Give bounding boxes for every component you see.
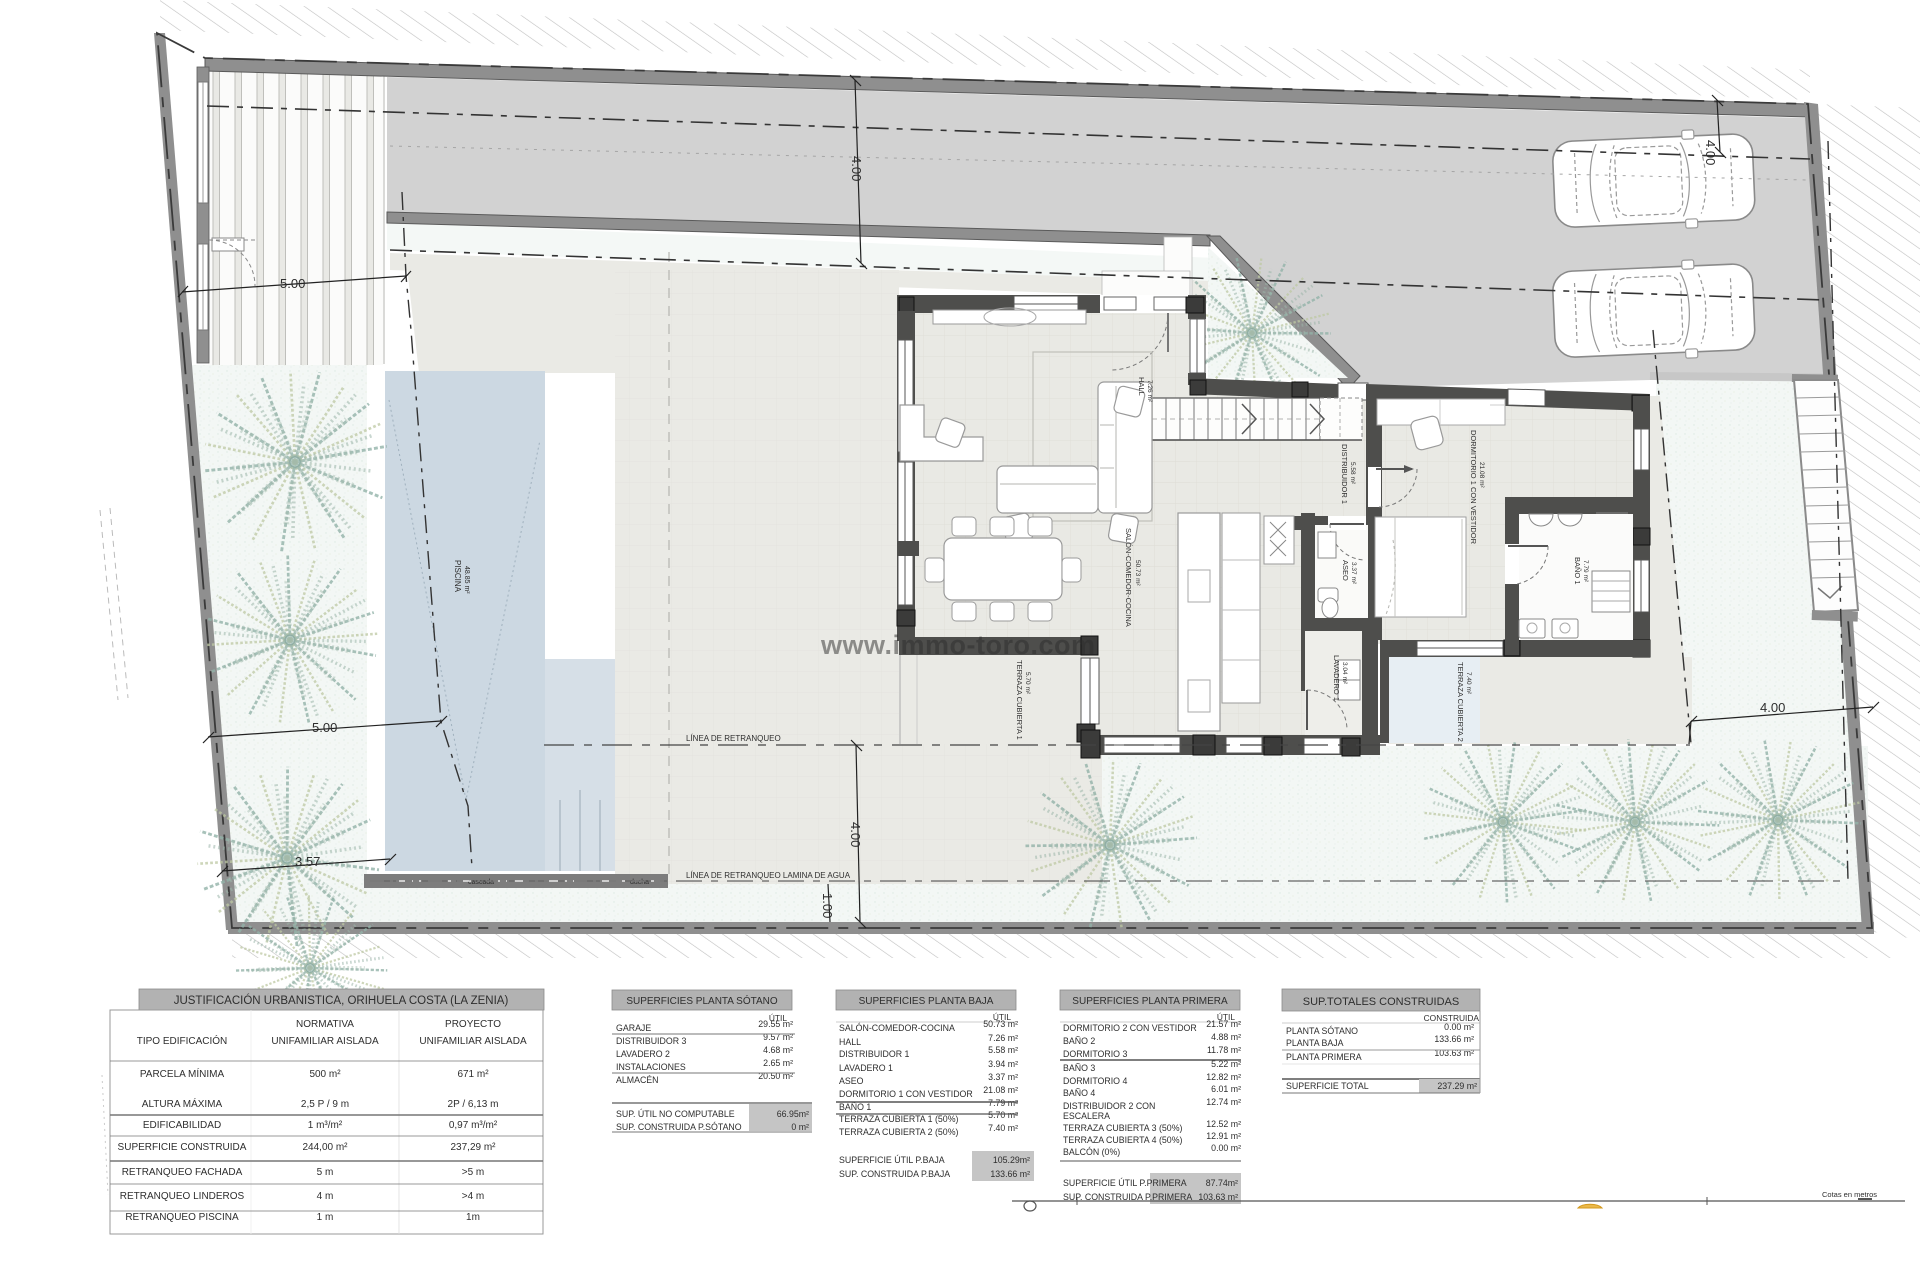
svg-text:SUP. CONSTRUIDA P.BAJA: SUP. CONSTRUIDA P.BAJA <box>839 1169 950 1179</box>
svg-text:DORMITORIO 3: DORMITORIO 3 <box>1063 1049 1127 1059</box>
svg-text:6.01 m²: 6.01 m² <box>1211 1084 1241 1094</box>
svg-text:0,97 m³/m²: 0,97 m³/m² <box>449 1120 498 1131</box>
svg-text:671 m²: 671 m² <box>457 1069 489 1080</box>
svg-text:7.26 m²: 7.26 m² <box>1146 380 1153 403</box>
svg-text:7.79 m²: 7.79 m² <box>1582 560 1589 583</box>
svg-text:4.00: 4.00 <box>1703 140 1718 165</box>
svg-text:50.73 m²: 50.73 m² <box>983 1019 1018 1029</box>
svg-text:1 m: 1 m <box>317 1212 334 1223</box>
svg-text:5.00: 5.00 <box>312 720 337 735</box>
svg-text:SUPERFICIE ÚTIL P.PRIMERA: SUPERFICIE ÚTIL P.PRIMERA <box>1063 1178 1187 1188</box>
svg-text:SALÓN-COMEDOR-COCINA: SALÓN-COMEDOR-COCINA <box>839 1023 955 1033</box>
svg-text:ALTURA MÁXIMA: ALTURA MÁXIMA <box>142 1097 223 1110</box>
svg-text:DORMITORIO 1 CON VESTIDOR: DORMITORIO 1 CON VESTIDOR <box>839 1089 973 1099</box>
svg-text:DISTRIBUIDOR 1: DISTRIBUIDOR 1 <box>1340 444 1349 504</box>
svg-text:TERRAZA CUBIERTA 3 (50%): TERRAZA CUBIERTA 3 (50%) <box>1063 1123 1183 1133</box>
svg-text:7.40 m²: 7.40 m² <box>1465 672 1472 695</box>
svg-text:1.00: 1.00 <box>820 893 835 918</box>
svg-text:NORMATIVA: NORMATIVA <box>296 1019 354 1030</box>
svg-text:RETRANQUEO PISCINA: RETRANQUEO PISCINA <box>125 1212 239 1223</box>
svg-text:5.00: 5.00 <box>280 276 305 291</box>
svg-text:TIPO EDIFICACIÓN: TIPO EDIFICACIÓN <box>137 1034 228 1047</box>
svg-text:SUPERFICIES PLANTA BAJA: SUPERFICIES PLANTA BAJA <box>859 996 994 1007</box>
svg-text:SUPERFICIE ÚTIL P.BAJA: SUPERFICIE ÚTIL P.BAJA <box>839 1155 945 1165</box>
svg-text:1m: 1m <box>466 1212 480 1223</box>
svg-text:PLANTA PRIMERA: PLANTA PRIMERA <box>1286 1052 1362 1062</box>
svg-text:3.37 m²: 3.37 m² <box>988 1072 1018 1082</box>
svg-text:DISTRIBUIDOR 2 CON: DISTRIBUIDOR 2 CON <box>1063 1101 1155 1111</box>
svg-text:7.40 m²: 7.40 m² <box>988 1123 1018 1133</box>
svg-text:SUP. ÚTIL NO COMPUTABLE: SUP. ÚTIL NO COMPUTABLE <box>616 1109 735 1119</box>
svg-text:UNIFAMILIAR AISLADA: UNIFAMILIAR AISLADA <box>419 1036 527 1047</box>
svg-text:LAVADERO 1: LAVADERO 1 <box>1332 655 1341 701</box>
svg-text:>4 m: >4 m <box>462 1191 485 1202</box>
svg-text:ducha: ducha <box>630 879 649 886</box>
svg-text:5.58 m²: 5.58 m² <box>988 1045 1018 1055</box>
svg-text:INSTALACIONES: INSTALACIONES <box>616 1062 686 1072</box>
svg-text:0.00 m²: 0.00 m² <box>1444 1022 1474 1032</box>
svg-text:BAÑO 1: BAÑO 1 <box>839 1102 871 1112</box>
svg-text:BAÑO 4: BAÑO 4 <box>1063 1088 1095 1098</box>
svg-text:ASEO: ASEO <box>1341 560 1350 581</box>
svg-text:JUSTIFICACIÓN URBANISTICA, ORI: JUSTIFICACIÓN URBANISTICA, ORIHUELA COST… <box>174 994 509 1007</box>
svg-text:TERRAZA CUBIERTA 1: TERRAZA CUBIERTA 1 <box>1015 660 1024 740</box>
svg-text:3.37 m²: 3.37 m² <box>1350 562 1357 585</box>
svg-text:87.74m²: 87.74m² <box>1206 1178 1238 1188</box>
svg-text:4.00: 4.00 <box>848 822 863 847</box>
svg-text:HALL: HALL <box>1137 377 1146 396</box>
svg-text:SUP. CONSTRUIDA P.SÓTANO: SUP. CONSTRUIDA P.SÓTANO <box>616 1122 742 1132</box>
svg-text:RETRANQUEO FACHADA: RETRANQUEO FACHADA <box>122 1167 243 1178</box>
svg-text:www.immo-toro.com: www.immo-toro.com <box>820 630 1096 660</box>
svg-text:LAVADERO 2: LAVADERO 2 <box>616 1049 670 1059</box>
svg-text:105.29m²: 105.29m² <box>993 1155 1030 1165</box>
svg-text:21.57 m²: 21.57 m² <box>1206 1019 1241 1029</box>
svg-text:GARAJE: GARAJE <box>616 1023 651 1033</box>
svg-text:DISTRIBUIDOR 3: DISTRIBUIDOR 3 <box>616 1036 686 1046</box>
svg-text:133.66 m²: 133.66 m² <box>1434 1034 1474 1044</box>
svg-text:5.70 m²: 5.70 m² <box>1024 672 1031 695</box>
svg-text:0 m²: 0 m² <box>791 1122 809 1132</box>
svg-text:5 m: 5 m <box>317 1167 334 1178</box>
svg-text:5.58 m²: 5.58 m² <box>1349 462 1356 485</box>
svg-text:SUPERFICIE TOTAL: SUPERFICIE TOTAL <box>1286 1081 1369 1091</box>
svg-text:ESCALERA: ESCALERA <box>1063 1111 1110 1121</box>
svg-text:BAÑO 3: BAÑO 3 <box>1063 1063 1095 1073</box>
svg-text:4.00: 4.00 <box>1760 700 1785 715</box>
svg-text:TERRAZA CUBIERTA 2 (50%): TERRAZA CUBIERTA 2 (50%) <box>839 1127 959 1137</box>
svg-text:PLANTA BAJA: PLANTA BAJA <box>1286 1038 1344 1048</box>
svg-text:29.55 m²: 29.55 m² <box>758 1019 793 1029</box>
svg-text:4.00: 4.00 <box>849 156 864 181</box>
svg-text:12.91 m²: 12.91 m² <box>1206 1131 1241 1141</box>
svg-text:21.08 m²: 21.08 m² <box>983 1085 1018 1095</box>
svg-text:DORMITORIO 4: DORMITORIO 4 <box>1063 1076 1127 1086</box>
svg-text:0.00 m²: 0.00 m² <box>1211 1143 1241 1153</box>
svg-text:SUPERFICIES PLANTA PRIMERA: SUPERFICIES PLANTA PRIMERA <box>1072 996 1228 1007</box>
svg-text:133.66 m²: 133.66 m² <box>990 1169 1030 1179</box>
svg-text:SUPERFICIES PLANTA SÓTANO: SUPERFICIES PLANTA SÓTANO <box>626 994 778 1007</box>
svg-text:LÍNEA DE RETRANQUEO LAMINA DE: LÍNEA DE RETRANQUEO LAMINA DE AGUA <box>686 871 851 880</box>
svg-text:PLANTA SÓTANO: PLANTA SÓTANO <box>1286 1026 1358 1036</box>
svg-text:TERRAZA CUBIERTA 1 (50%): TERRAZA CUBIERTA 1 (50%) <box>839 1114 959 1124</box>
svg-text:244,00 m²: 244,00 m² <box>302 1142 348 1153</box>
svg-text:TERRAZA CUBIERTA 4 (50%): TERRAZA CUBIERTA 4 (50%) <box>1063 1135 1183 1145</box>
svg-text:ALMACÉN: ALMACÉN <box>616 1075 659 1085</box>
svg-text:237,29 m²: 237,29 m² <box>450 1142 496 1153</box>
svg-text:BAÑO 2: BAÑO 2 <box>1063 1036 1095 1046</box>
svg-text:4.68 m²: 4.68 m² <box>763 1045 793 1055</box>
svg-text:1 m³/m²: 1 m³/m² <box>308 1120 343 1131</box>
svg-text:2P / 6,13 m: 2P / 6,13 m <box>448 1099 499 1110</box>
svg-text:7.26 m²: 7.26 m² <box>988 1033 1018 1043</box>
svg-text:UNIFAMILIAR AISLADA: UNIFAMILIAR AISLADA <box>271 1036 379 1047</box>
svg-text:BAÑO 1: BAÑO 1 <box>1573 557 1582 585</box>
svg-text:12.52 m²: 12.52 m² <box>1206 1119 1241 1129</box>
svg-text:12.82 m²: 12.82 m² <box>1206 1072 1241 1082</box>
svg-text:LAVADERO 1: LAVADERO 1 <box>839 1063 893 1073</box>
svg-text:237.29 m²: 237.29 m² <box>1437 1081 1477 1091</box>
svg-text:7.79 m²: 7.79 m² <box>988 1098 1018 1108</box>
svg-text:500 m²: 500 m² <box>309 1069 341 1080</box>
svg-text:21.08 m²: 21.08 m² <box>1478 462 1485 488</box>
svg-text:DISTRIBUIDOR 1: DISTRIBUIDOR 1 <box>839 1049 909 1059</box>
svg-text:4 m: 4 m <box>317 1191 334 1202</box>
svg-text:SUP.TOTALES CONSTRUIDAS: SUP.TOTALES CONSTRUIDAS <box>1303 996 1459 1008</box>
svg-text:4.88 m²: 4.88 m² <box>1211 1032 1241 1042</box>
svg-text:SUPERFICIE CONSTRUIDA: SUPERFICIE CONSTRUIDA <box>118 1142 247 1153</box>
svg-text:HALL: HALL <box>839 1037 861 1047</box>
svg-text:EDIFICABILIDAD: EDIFICABILIDAD <box>143 1120 221 1131</box>
svg-text:3.04 m²: 3.04 m² <box>1341 662 1348 685</box>
svg-text:SALÓN-COMEDOR-COCINA: SALÓN-COMEDOR-COCINA <box>1124 528 1133 627</box>
svg-text:50.73 m²: 50.73 m² <box>1134 560 1141 586</box>
svg-text:48.85 m²: 48.85 m² <box>463 566 470 594</box>
svg-text:12.74 m²: 12.74 m² <box>1206 1097 1241 1107</box>
svg-text:3.57: 3.57 <box>295 854 320 869</box>
svg-text:Cotas en metros: Cotas en metros <box>1822 1190 1877 1199</box>
svg-text:>5 m: >5 m <box>462 1167 485 1178</box>
svg-text:ASEO: ASEO <box>839 1076 864 1086</box>
svg-text:DORMITORIO 1 CON VESTIDOR: DORMITORIO 1 CON VESTIDOR <box>1469 430 1478 545</box>
svg-text:PROYECTO: PROYECTO <box>445 1019 501 1030</box>
svg-text:PISCINA: PISCINA <box>453 560 462 593</box>
svg-text:2.65 m²: 2.65 m² <box>763 1058 793 1068</box>
svg-text:RETRANQUEO LINDEROS: RETRANQUEO LINDEROS <box>120 1191 245 1202</box>
svg-text:11.78 m²: 11.78 m² <box>1207 1045 1241 1055</box>
svg-text:PARCELA MÍNIMA: PARCELA MÍNIMA <box>140 1067 225 1080</box>
svg-text:TERRAZA CUBIERTA 2: TERRAZA CUBIERTA 2 <box>1456 662 1465 742</box>
svg-text:5.70 m²: 5.70 m² <box>988 1110 1018 1120</box>
svg-text:DORMITORIO 2 CON VESTIDOR: DORMITORIO 2 CON VESTIDOR <box>1063 1023 1197 1033</box>
svg-text:3.94 m²: 3.94 m² <box>988 1059 1018 1069</box>
svg-text:BALCÓN (0%): BALCÓN (0%) <box>1063 1147 1120 1157</box>
svg-text:LÍNEA DE RETRANQUEO: LÍNEA DE RETRANQUEO <box>686 734 781 743</box>
svg-text:cascada: cascada <box>468 879 494 886</box>
svg-text:2,5 P / 9 m: 2,5 P / 9 m <box>301 1099 349 1110</box>
svg-text:66.95m²: 66.95m² <box>777 1109 809 1119</box>
